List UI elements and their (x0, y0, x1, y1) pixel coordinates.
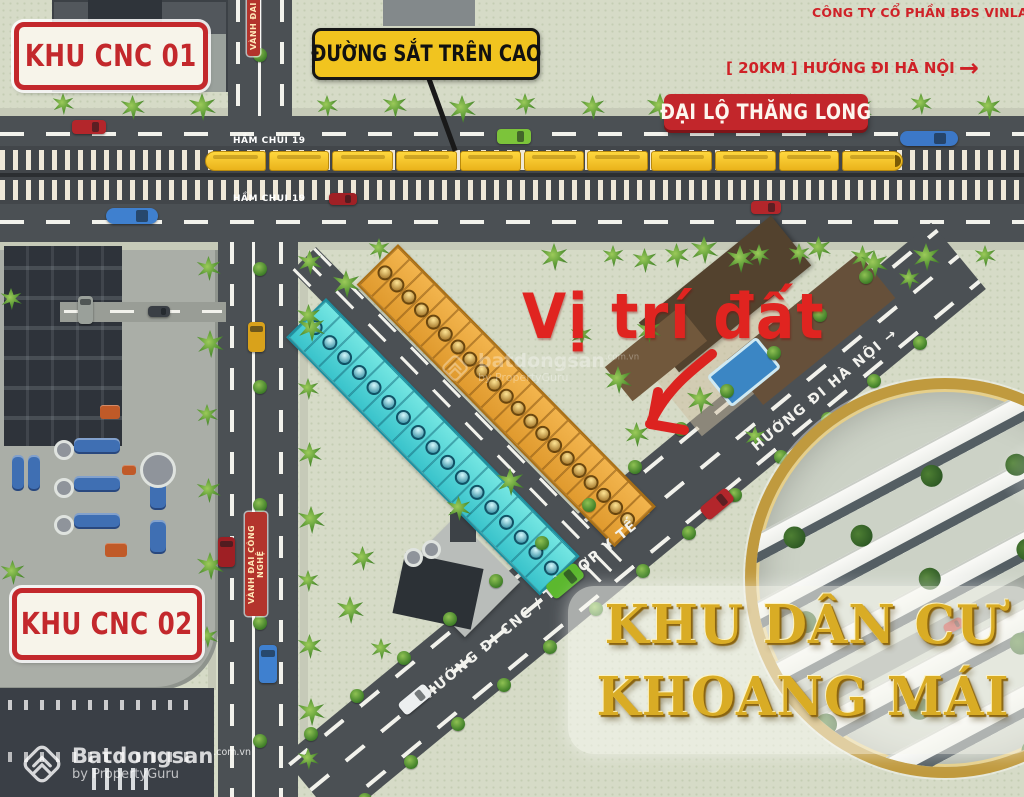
lane-marking (280, 0, 284, 116)
train (205, 151, 903, 171)
watermark-brand: batdongsan (478, 350, 605, 372)
machinery-vertical (150, 520, 166, 554)
plot-location-callout: Vị trí đất (522, 280, 825, 353)
red-car-icon (218, 537, 235, 567)
machinery-row (74, 513, 120, 529)
bush-icon (404, 755, 418, 769)
parked-truck (12, 455, 24, 491)
machinery-row (74, 476, 120, 492)
yellow-cab-truck-icon (78, 296, 93, 324)
elevated-railway-sign-label: ĐƯỜNG SẮT TRÊN CAO (311, 42, 541, 67)
bush-icon (682, 526, 696, 540)
machinery-orange (100, 405, 120, 419)
train-car (779, 151, 840, 171)
lane-marking (236, 0, 240, 116)
watermark-domain: .com.vn (605, 353, 639, 363)
tunnel-label: HẦM CHUI 19 (233, 194, 306, 204)
red-car-icon (751, 201, 781, 214)
right-arrow-icon: → (959, 61, 979, 75)
ring-road-label-top: VÀNH ĐAI (247, 0, 260, 56)
machinery-orange (105, 543, 127, 557)
train-car (332, 151, 393, 171)
ring-road-label: VÀNH ĐAI CÔNG NGHỆ (245, 512, 267, 616)
round-machine (54, 515, 74, 535)
bush-icon (543, 640, 557, 654)
machinery-orange (122, 465, 136, 475)
khu-cnc-02-label: KHU CNC 02 (21, 607, 193, 642)
watermark-bottom-left: Batdongsan.com.vn by PropertyGuru (20, 742, 251, 786)
machinery-row (74, 438, 120, 454)
sidewalk (0, 242, 1024, 250)
storage-tank (140, 452, 176, 488)
batdongsan-logo-icon (440, 353, 470, 383)
bush-icon (582, 498, 596, 512)
watermark-domain: .com.vn (213, 747, 251, 758)
bush-icon (628, 460, 642, 474)
bush-icon (253, 262, 267, 276)
bush-icon (397, 651, 411, 665)
lane-marking (279, 242, 283, 797)
palm-tree-icon (370, 638, 392, 660)
train-car (205, 151, 266, 171)
tunnel-label: HẦM CHUI 19 (233, 136, 306, 146)
train-car (587, 151, 648, 171)
roof-vent (422, 540, 441, 559)
blue-truck-icon (259, 645, 277, 683)
bush-icon (913, 336, 927, 350)
palm-tree-icon (350, 546, 375, 571)
bush-icon (253, 380, 267, 394)
watermark-byline: by PropertyGuru (478, 371, 639, 384)
elevated-railway-sign: ĐƯỜNG SẮT TRÊN CAO (312, 28, 540, 80)
bush-icon (497, 678, 511, 692)
train-car (842, 151, 903, 171)
bush-icon (253, 498, 267, 512)
batdongsan-logo-icon (20, 742, 64, 786)
bush-icon (253, 734, 267, 748)
distance-note: [ 20KM ] HƯỚNG ĐI HÀ NỘI→ (726, 59, 979, 77)
dark-car-icon (148, 306, 170, 317)
round-machine (54, 440, 74, 460)
roof-vent (404, 548, 423, 567)
yellow-truck-icon (248, 322, 265, 352)
blue-bus-icon (106, 208, 158, 224)
window-band (8, 700, 198, 710)
bush-icon (304, 727, 318, 741)
train-car (396, 151, 457, 171)
train-car (524, 151, 585, 171)
watermark-byline: by PropertyGuru (72, 767, 251, 783)
watermark-center: batdongsan.com.vn by PropertyGuru (440, 352, 639, 384)
bush-icon (859, 270, 873, 284)
site-map: HẦM CHUI 19 HẦM CHUI 19 VÀNH ĐAI VÀNH ĐA… (0, 0, 1024, 797)
green-bus-icon (497, 129, 531, 144)
company-name: CÔNG TY CỔ PHẦN BĐS VINLAND (812, 5, 1024, 20)
khu-cnc-01-sign: KHU CNC 01 (14, 22, 208, 90)
railway-ties (0, 180, 1024, 200)
bush-icon (253, 616, 267, 630)
watermark-brand: Batdongsan (72, 744, 213, 768)
project-name-line1: KHU DÂN CƯ (577, 594, 1024, 656)
palm-tree-icon (336, 596, 364, 624)
project-name-line2: KHOANG MÁI (577, 666, 1024, 728)
train-car (715, 151, 776, 171)
parked-truck (28, 455, 40, 491)
distance-text: [ 20KM ] HƯỚNG ĐI HÀ NỘI (726, 59, 955, 77)
thang-long-avenue-sign: ĐẠI LỘ THĂNG LONG (664, 94, 868, 130)
train-car (269, 151, 330, 171)
bush-icon (451, 717, 465, 731)
train-car (651, 151, 712, 171)
blue-tanker-icon (900, 131, 958, 146)
train-car (460, 151, 521, 171)
red-car-icon (72, 120, 106, 134)
khu-cnc-02-sign: KHU CNC 02 (12, 588, 202, 660)
tree-icon (911, 770, 941, 778)
red-car-icon (329, 193, 357, 205)
bush-icon (867, 374, 881, 388)
lane-marking (230, 242, 234, 797)
palm-tree-icon (632, 248, 657, 273)
thang-long-avenue-label: ĐẠI LỘ THĂNG LONG (660, 100, 871, 124)
building-top-center (383, 0, 475, 26)
bush-icon (350, 689, 364, 703)
bush-icon (636, 564, 650, 578)
khu-cnc-01-label: KHU CNC 01 (25, 39, 197, 74)
round-machine (54, 478, 74, 498)
railway-divider (0, 173, 1024, 177)
